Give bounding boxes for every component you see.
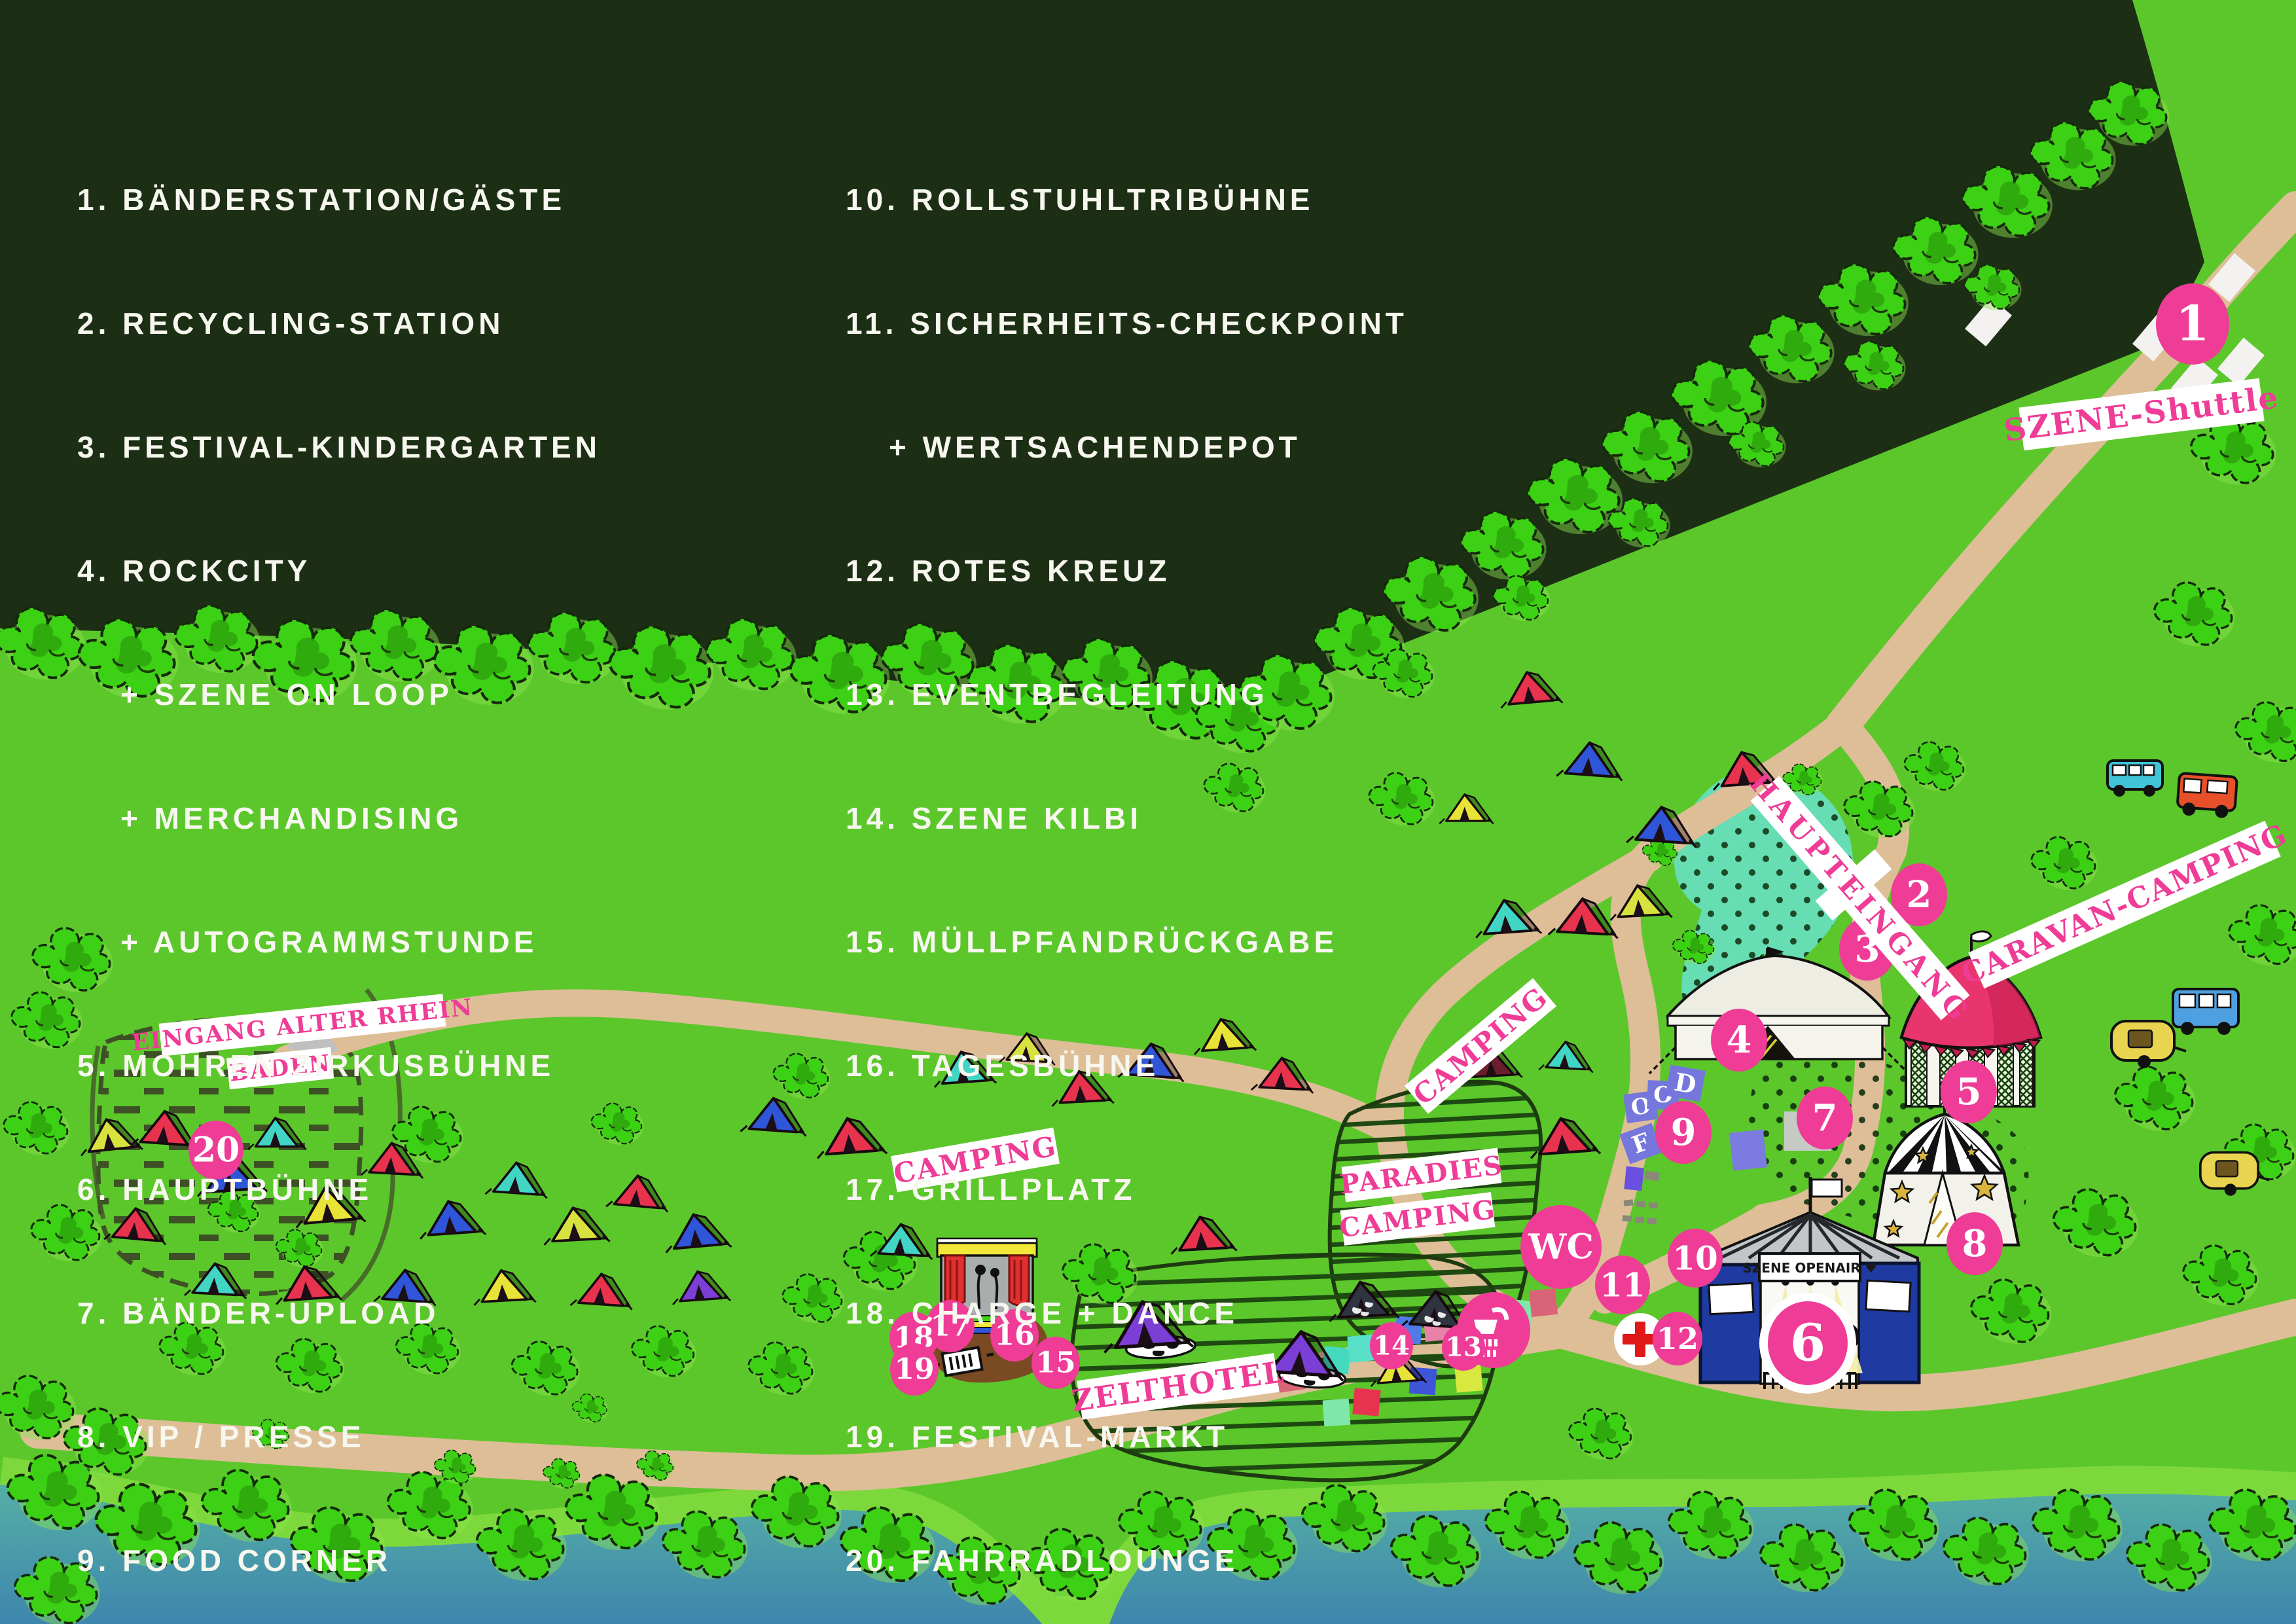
svg-text:6: 6 (1790, 1314, 1825, 1373)
legend-item: 8. VIP / PRESSE (77, 1416, 601, 1458)
legend-item: 16. TAGESBÜHNE (846, 1045, 1408, 1087)
legend-subitem: + MERCHANDISING (77, 798, 601, 839)
marker-13: 13 (1442, 1324, 1485, 1371)
legend-subitem: + SZENE ON LOOP (77, 674, 601, 715)
svg-text:13: 13 (1445, 1332, 1482, 1363)
marker-8: 8 (1946, 1212, 2003, 1275)
marker-6: 6 (1759, 1293, 1856, 1394)
marker-12: 12 (1653, 1312, 1702, 1365)
legend-item: 9. FOOD CORNER (77, 1540, 601, 1581)
svg-text:12: 12 (1657, 1321, 1698, 1356)
legend-column-2: 10. ROLLSTUHLTRIBÜHNE 11. SICHERHEITS-CH… (846, 97, 1408, 1623)
legend-item: 11. SICHERHEITS-CHECKPOINT (846, 303, 1408, 344)
legend-item: 4. ROCKCITY (77, 550, 601, 592)
marker-11: 11 (1595, 1255, 1650, 1314)
marker-10: 10 (1668, 1229, 1723, 1288)
svg-text:8: 8 (1962, 1222, 1988, 1265)
svg-text:9: 9 (1671, 1111, 1696, 1154)
legend-item: 1. BÄNDERSTATION/GÄSTE (77, 179, 601, 221)
legend-item: 20. FAHRRADLOUNGE (846, 1540, 1408, 1581)
legend-subitem: + AUTOGRAMMSTUNDE (77, 922, 601, 963)
stage-banner: SZENE OPENAIR ♥ (1742, 1260, 1876, 1276)
blue-van (2173, 989, 2238, 1035)
marker-7: 7 (1797, 1087, 1853, 1149)
legend-column-1: 1. BÄNDERSTATION/GÄSTE 2. RECYCLING-STAT… (77, 97, 601, 1623)
svg-text:10: 10 (1672, 1239, 1718, 1278)
svg-text:2: 2 (1907, 873, 1932, 916)
legend-item: 19. FESTIVAL-MARKT (846, 1416, 1408, 1458)
legend-item: 10. ROLLSTUHLTRIBÜHNE (846, 179, 1408, 221)
legend-subitem: + WERTSACHENDEPOT (846, 427, 1408, 468)
svg-text:7: 7 (1812, 1096, 1838, 1140)
legend-item: 2. RECYCLING-STATION (77, 303, 601, 344)
wc-station: WC (1520, 1205, 1602, 1289)
legend-item: 14. SZENE KILBI (846, 798, 1408, 839)
svg-text:4: 4 (1727, 1019, 1752, 1062)
svg-text:11: 11 (1600, 1266, 1645, 1305)
marker-5: 5 (1941, 1060, 1997, 1123)
legend-item: 5. MOHREN ZIRKUSBÜHNE (77, 1045, 601, 1087)
svg-text:1: 1 (2176, 296, 2210, 352)
legend-item: 18. CHARGE + DANCE (846, 1293, 1408, 1334)
svg-text:5: 5 (1956, 1070, 1982, 1113)
legend-item: 15. MÜLLPFANDRÜCKGABE (846, 922, 1408, 963)
marker-4: 4 (1711, 1009, 1767, 1072)
festival-map: SZENE OPENAIR ♥ + - F O O D WC (0, 0, 2296, 1624)
legend-item: 13. EVENTBEGLEITUNG (846, 674, 1408, 715)
legend-item: 7. BÄNDER-UPLOAD (77, 1293, 601, 1334)
legend-item: 3. FESTIVAL-KINDERGARTEN (77, 427, 601, 468)
market-stall (1529, 1288, 1558, 1317)
svg-text:WC: WC (1528, 1227, 1594, 1267)
legend-item: 6. HAUPTBÜHNE (77, 1169, 601, 1210)
legend-item: 12. ROTES KREUZ (846, 550, 1408, 592)
legend-item: 17. GRILLPLATZ (846, 1169, 1408, 1210)
marker-1: 1 (2156, 283, 2229, 365)
marker-9: 9 (1655, 1101, 1712, 1164)
